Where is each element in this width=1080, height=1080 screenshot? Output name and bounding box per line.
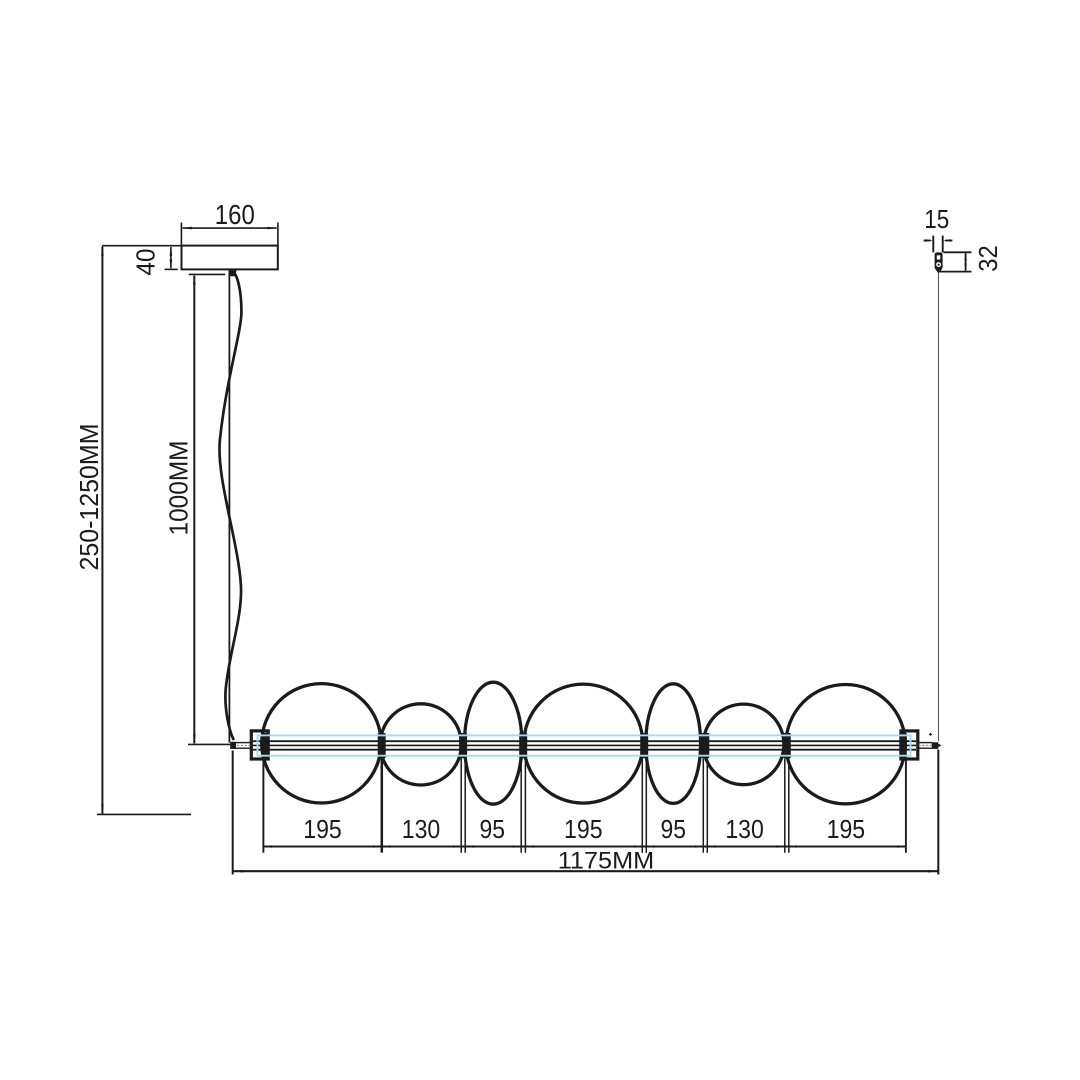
- svg-text:195: 195: [303, 816, 342, 844]
- svg-text:1175MM: 1175MM: [558, 848, 655, 875]
- svg-text:130: 130: [725, 816, 764, 844]
- svg-text:250-1250MM: 250-1250MM: [74, 424, 104, 571]
- svg-text:95: 95: [661, 816, 687, 844]
- svg-text:40: 40: [131, 249, 161, 276]
- svg-text:195: 195: [827, 816, 866, 844]
- svg-text:1000MM: 1000MM: [164, 441, 194, 536]
- svg-text:130: 130: [402, 816, 441, 844]
- svg-text:32: 32: [973, 245, 1003, 272]
- svg-text:15: 15: [924, 204, 949, 234]
- svg-text:195: 195: [564, 816, 603, 844]
- svg-text:160: 160: [215, 199, 255, 230]
- svg-text:95: 95: [480, 816, 506, 844]
